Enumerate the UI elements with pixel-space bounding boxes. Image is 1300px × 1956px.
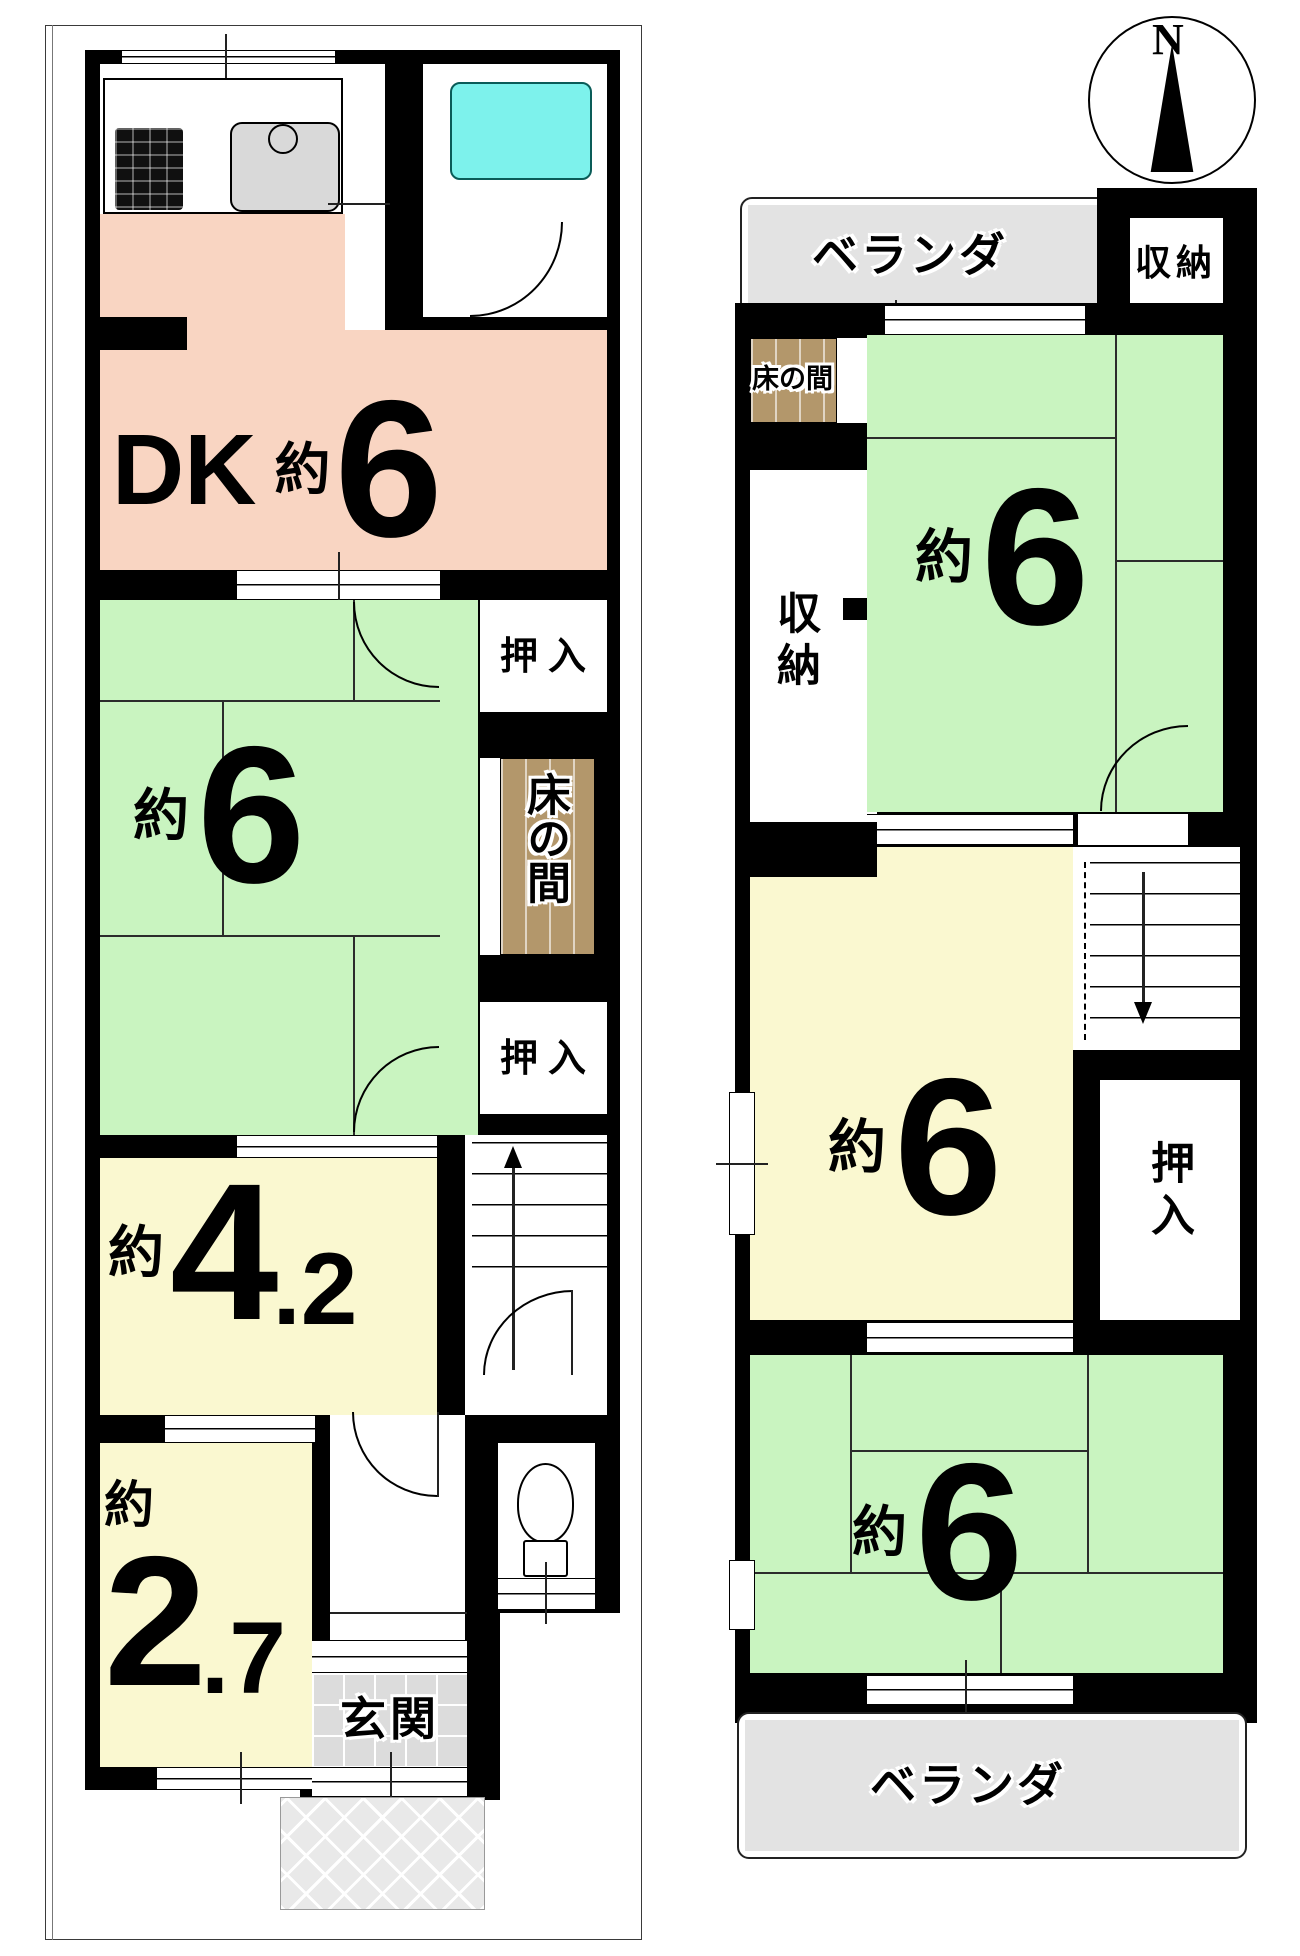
f2-tatami-south-approx: 約: [852, 1505, 907, 1560]
f2-tatami-north-label-row: 約 6: [915, 460, 1083, 655]
f2-tatami-south-window: [867, 1675, 1073, 1705]
f1-stove-icon: [115, 128, 183, 210]
f1-stair-door-leaf: [571, 1290, 573, 1375]
f2-tatami-south-label-row: 約 6: [852, 1435, 1017, 1630]
f1-kitchen-window: [122, 50, 335, 64]
f1-genkan-inner-door: [312, 1640, 467, 1673]
f2-tatami-line: [1087, 1355, 1089, 1572]
f1-room27-dec: .7: [201, 1607, 286, 1715]
f2-wall-stub-closet-south: [735, 822, 877, 877]
f1-tatami-size: 6: [197, 718, 299, 913]
f2-tatami-line: [867, 437, 1116, 439]
f2-tokonoma-strip: [837, 338, 867, 423]
f1-stairs: [472, 1142, 607, 1274]
f1-room27-int: 2: [104, 1530, 201, 1715]
f1-tatami-label-row: 約 6: [133, 718, 299, 913]
f2-veranda-south-label: ベランダ: [870, 1762, 1066, 1808]
f1-genkan-label: 玄関: [340, 1696, 440, 1742]
f1-stairs-dashed-line: [455, 1196, 457, 1280]
f1-room42-approx: 約: [108, 1225, 164, 1281]
f1-tatami-line: [353, 935, 355, 1135]
f2-tatami-line: [1115, 335, 1117, 812]
f1-room27-window-tick: [240, 1752, 242, 1804]
f1-corridor-north: [345, 64, 385, 330]
f2-tatami-north-size: 6: [981, 460, 1083, 655]
f1-tatami-approx: 約: [133, 788, 189, 844]
f2-shunou-corner-label: 収納: [1135, 245, 1217, 281]
f1-toilet-window-tick: [545, 1562, 547, 1624]
f2-room-middle-size: 6: [894, 1050, 996, 1245]
f2-south-window-tick: [965, 1660, 967, 1718]
f2-tokonoma-label: 床の間: [752, 366, 833, 393]
f2-tatami-north-window: [885, 305, 1085, 335]
f1-stairs-up-arrow: [504, 1146, 522, 1168]
f2-oshiire-label: 押入: [1146, 1140, 1190, 1244]
f2-tatami-line: [1115, 560, 1223, 562]
f2-room-middle-label-row: 約 6: [828, 1050, 996, 1245]
f1-oshiire-lower-label: 押入: [500, 1040, 596, 1078]
f1-porch-approach: [280, 1797, 485, 1910]
f1-oshiire-upper-label: 押入: [500, 638, 596, 676]
f1-kitchen-window-tick: [225, 34, 227, 78]
f2-room-middle-approx: 約: [828, 1119, 886, 1177]
compass-north-label: N: [1152, 18, 1184, 62]
f1-wall-stub-west: [100, 317, 187, 350]
f1-room42-dec: .2: [272, 1238, 357, 1350]
f2-middle-door-gap: [1078, 814, 1188, 845]
site-boundary-inner-line: [52, 25, 53, 1940]
f2-shunou-west-label: 収納: [772, 590, 816, 694]
f1-tatami-line: [100, 700, 440, 702]
f1-tokonoma-strip: [480, 758, 500, 955]
f1-tatami-line: [100, 935, 440, 937]
f1-faucet-icon: [268, 124, 298, 154]
f2-stairs-arrow-line: [1142, 872, 1145, 1007]
f1-tokonoma-label: 床の間: [522, 772, 566, 904]
f1-room42-label-row: 約 4 .2: [108, 1155, 358, 1350]
f1-room27-label-row: 約 2 .7: [104, 1480, 286, 1715]
f1-toilet-window: [498, 1578, 595, 1610]
f2-stairs-dashed-line: [1084, 862, 1086, 1040]
f1-genkan-step-line: [330, 1612, 467, 1614]
f1-corridor-tick: [328, 203, 390, 205]
f1-dk-approx: 約: [274, 442, 330, 498]
f1-bathtub-icon: [450, 82, 592, 180]
f1-toilet-bowl-icon: [517, 1463, 574, 1543]
f2-tatami-north-approx: 約: [915, 529, 973, 587]
f2-stairs: [1090, 862, 1240, 1042]
f1-room42-int: 4: [170, 1155, 272, 1350]
f2-veranda-north-label: ベランダ: [812, 232, 1008, 278]
f2-west-window-south: [729, 1560, 755, 1630]
f2-middle-sliding-door: [867, 814, 1073, 845]
f1-room42-room27-sliding-door: [165, 1415, 315, 1443]
f2-west-window-tick: [716, 1163, 768, 1165]
f2-room-middle-south-door: [867, 1322, 1073, 1353]
floor-plan-canvas: 押入 床の間 押入 玄関 DK 約 6 約 6 約 4: [0, 0, 1300, 1956]
f1-dk-size: 6: [334, 372, 436, 567]
f1-dk-label-row: DK 約 6: [112, 372, 437, 567]
f2-stairs-down-arrow: [1134, 1002, 1152, 1024]
f1-hallway-door-leaf: [437, 1412, 439, 1497]
f2-tatami-south-size: 6: [915, 1435, 1017, 1630]
f1-dk-floor-upper: [100, 214, 345, 330]
f1-dk-name: DK: [112, 420, 256, 520]
